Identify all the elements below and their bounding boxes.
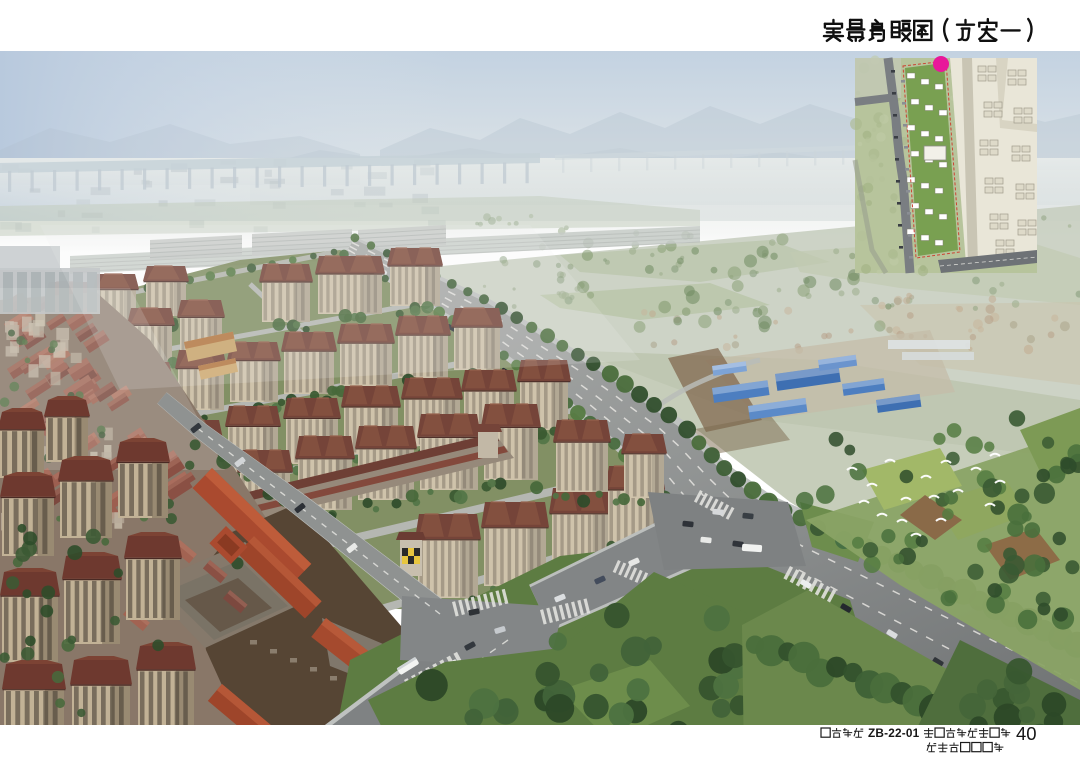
svg-text:40: 40 xyxy=(1016,723,1037,744)
svg-text:ZB-22-01: ZB-22-01 xyxy=(868,726,920,740)
